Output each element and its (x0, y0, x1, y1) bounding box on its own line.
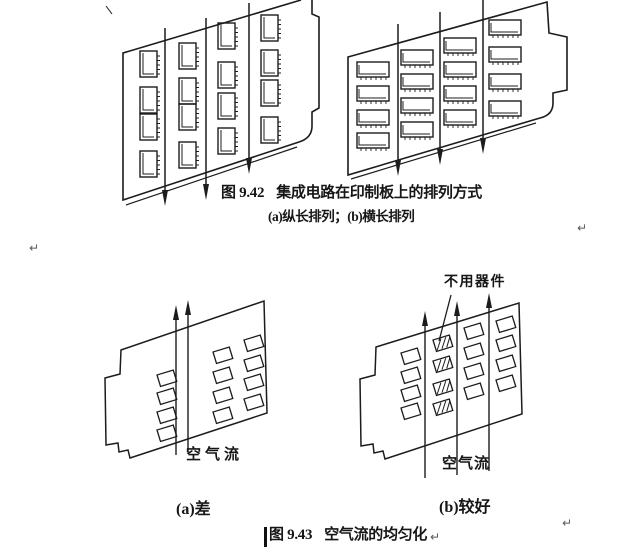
ic-grid-942a (140, 15, 281, 177)
pcb-board-942b (348, 0, 567, 179)
airflow-down-arrows-942b (395, 0, 486, 176)
airflow-label-right: 空气流 (442, 456, 490, 473)
figure-943-title: 空气流的均匀化 (324, 527, 427, 543)
unused-component-label: 不用器件 (444, 275, 506, 291)
pcb-board-943b (360, 293, 522, 478)
variant-a-poor-label: (a)差 (176, 501, 211, 519)
paragraph-return-icon: ↵ (430, 530, 440, 544)
figure-line-art (0, 0, 618, 555)
unused-component-pointer-line (439, 295, 451, 341)
scanned-document-page: 图 9.42集成电路在印制板上的排列方式 (a)纵长排列；(b)横长排列 不用器… (0, 0, 618, 555)
figure-943-caption: 图 9.43空气流的均匀化 (269, 527, 427, 544)
figure-942-title: 集成电路在印制板上的排列方式 (276, 185, 482, 201)
component-grid-943b (401, 316, 516, 419)
variant-b-better-label: (b)较好 (439, 499, 491, 517)
component-grid-943a (157, 335, 264, 441)
text-cursor[interactable] (264, 527, 267, 547)
figure-942-caption: 图 9.42集成电路在印制板上的排列方式 (221, 185, 482, 202)
pcb-board-943a (105, 300, 267, 458)
paragraph-return-icon: ↵ (577, 221, 587, 235)
figure-942-number: 图 9.42 (221, 185, 264, 201)
airflow-channel-up-arrows-943a (173, 300, 191, 455)
figure-943-number: 图 9.43 (269, 527, 312, 543)
paragraph-return-icon: ↵ (562, 516, 572, 530)
paragraph-return-icon: ↵ (29, 241, 39, 255)
airflow-label-left: 空气流 (186, 447, 243, 464)
scan-speck (106, 6, 112, 14)
pcb-board-942a (123, 0, 319, 206)
figure-942-subcaption: (a)纵长排列；(b)横长排列 (268, 209, 414, 225)
airflow-down-arrows-942a (162, 3, 252, 206)
